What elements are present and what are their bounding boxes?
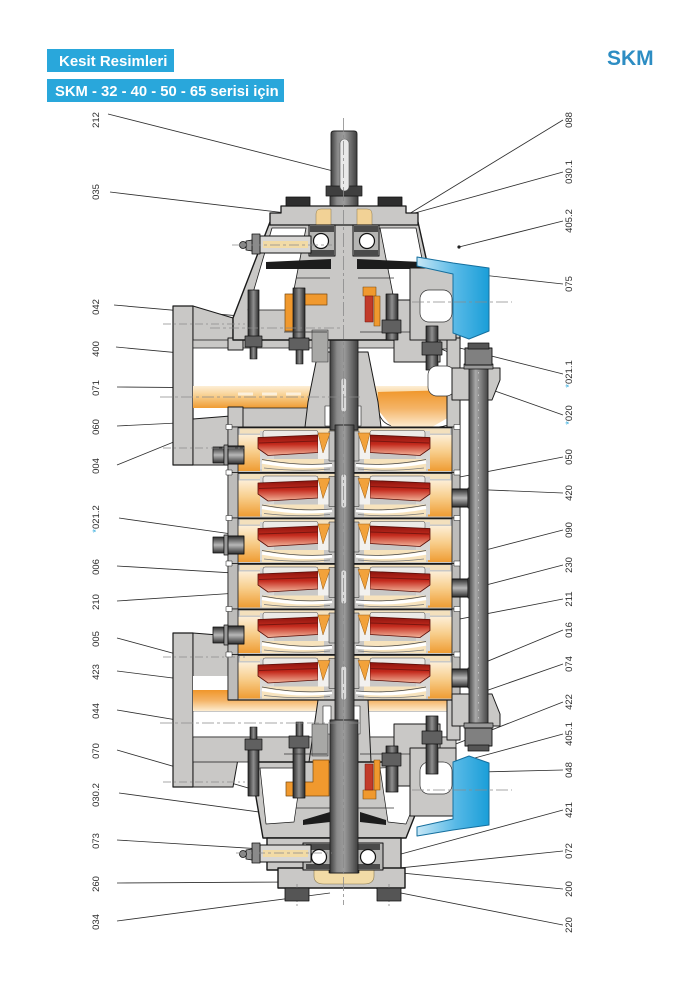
- svg-text:*021.1: *021.1: [564, 360, 575, 387]
- svg-text:072: 072: [564, 843, 575, 859]
- svg-text:*021.2: *021.2: [91, 505, 102, 532]
- svg-text:220: 220: [564, 917, 575, 933]
- svg-text:005: 005: [91, 631, 102, 647]
- svg-text:421: 421: [564, 802, 575, 818]
- svg-text:042: 042: [91, 299, 102, 315]
- svg-text:034: 034: [91, 914, 102, 930]
- svg-text:200: 200: [564, 881, 575, 897]
- svg-text:006: 006: [91, 559, 102, 575]
- svg-text:423: 423: [91, 664, 102, 680]
- svg-text:088: 088: [564, 112, 575, 128]
- svg-text:035: 035: [91, 184, 102, 200]
- svg-text:212: 212: [91, 112, 102, 128]
- svg-text:422: 422: [564, 694, 575, 710]
- svg-text:SKM - 32 - 40 - 50 - 65 serisi: SKM - 32 - 40 - 50 - 65 serisi için: [55, 84, 279, 100]
- svg-text:090: 090: [564, 522, 575, 538]
- svg-text:Kesit Resimleri: Kesit Resimleri: [59, 53, 167, 70]
- svg-text:SKM: SKM: [607, 47, 654, 70]
- svg-text:210: 210: [91, 594, 102, 610]
- svg-text:030.1: 030.1: [564, 160, 575, 184]
- svg-text:*020: *020: [564, 405, 575, 425]
- svg-text:044: 044: [91, 703, 102, 719]
- svg-text:405.1: 405.1: [564, 722, 575, 746]
- svg-text:400: 400: [91, 341, 102, 357]
- svg-text:004: 004: [91, 458, 102, 474]
- svg-text:405.2: 405.2: [564, 209, 575, 233]
- svg-text:075: 075: [564, 276, 575, 292]
- svg-text:074: 074: [564, 656, 575, 672]
- svg-text:073: 073: [91, 833, 102, 849]
- svg-text:048: 048: [564, 762, 575, 778]
- svg-text:260: 260: [91, 876, 102, 892]
- svg-text:420: 420: [564, 485, 575, 501]
- svg-text:230: 230: [564, 557, 575, 573]
- svg-text:050: 050: [564, 449, 575, 465]
- svg-text:016: 016: [564, 622, 575, 638]
- svg-text:071: 071: [91, 380, 102, 396]
- svg-text:211: 211: [564, 591, 575, 606]
- svg-text:060: 060: [91, 419, 102, 435]
- svg-text:030.2: 030.2: [91, 783, 102, 807]
- svg-text:070: 070: [91, 743, 102, 759]
